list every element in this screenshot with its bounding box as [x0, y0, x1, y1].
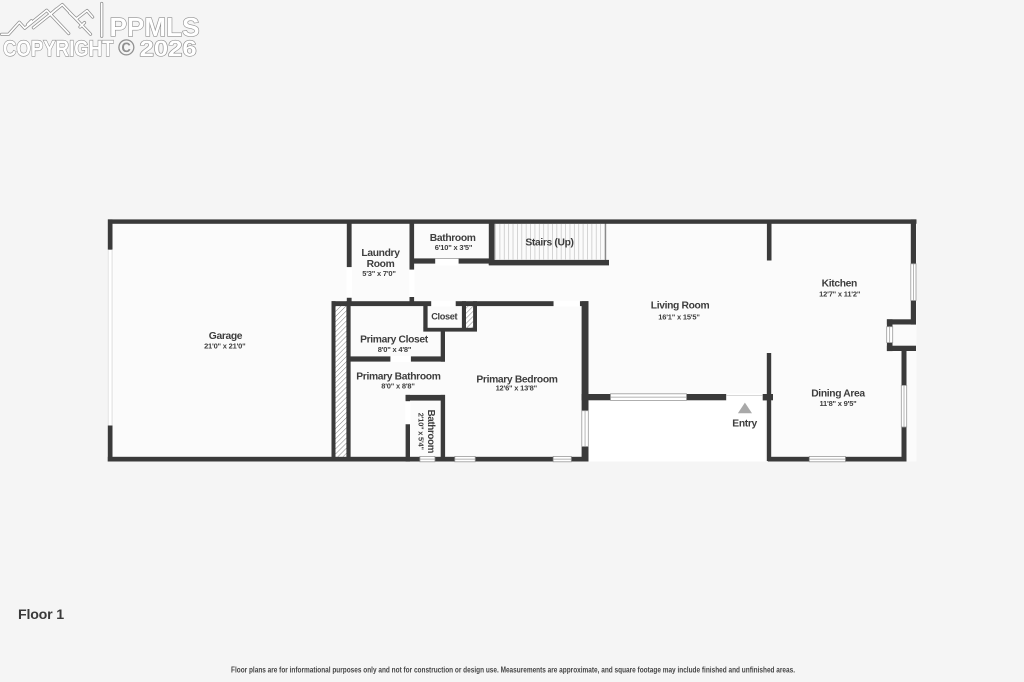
svg-text:Floor 1: Floor 1: [18, 607, 64, 623]
svg-text:8'0" x 8'8": 8'0" x 8'8": [381, 381, 415, 390]
svg-text:COPYRIGHT: COPYRIGHT: [3, 36, 114, 61]
svg-text:Living Room: Living Room: [651, 301, 710, 312]
svg-text:©: ©: [118, 34, 135, 60]
svg-text:5'3" x 7'0": 5'3" x 7'0": [362, 269, 396, 278]
svg-text:6'10" x 3'5": 6'10" x 3'5": [435, 243, 473, 252]
svg-text:Dining Area: Dining Area: [811, 388, 865, 399]
svg-text:8'0" x 4'8": 8'0" x 4'8": [378, 345, 412, 354]
svg-text:Floor plans are for informatio: Floor plans are for informational purpos…: [231, 665, 795, 675]
svg-text:Entry: Entry: [732, 418, 757, 429]
svg-text:Stairs (Up): Stairs (Up): [525, 238, 573, 249]
svg-text:12'7" x 11'2": 12'7" x 11'2": [819, 290, 861, 299]
svg-text:21'0" x 21'0": 21'0" x 21'0": [204, 341, 246, 350]
svg-text:Closet: Closet: [431, 312, 457, 322]
svg-text:11'8" x 9'5": 11'8" x 9'5": [819, 399, 857, 408]
svg-text:Primary Closet: Primary Closet: [360, 334, 429, 345]
svg-text:Kitchen: Kitchen: [822, 279, 857, 290]
svg-text:Laundry: Laundry: [361, 248, 400, 259]
svg-text:2026: 2026: [140, 36, 197, 61]
svg-text:2'10" x 5'4": 2'10" x 5'4": [417, 413, 426, 450]
svg-text:Bathroom: Bathroom: [425, 410, 436, 454]
svg-text:12'6" x 13'8": 12'6" x 13'8": [496, 383, 538, 392]
svg-text:16'1" x 15'5": 16'1" x 15'5": [658, 312, 700, 321]
